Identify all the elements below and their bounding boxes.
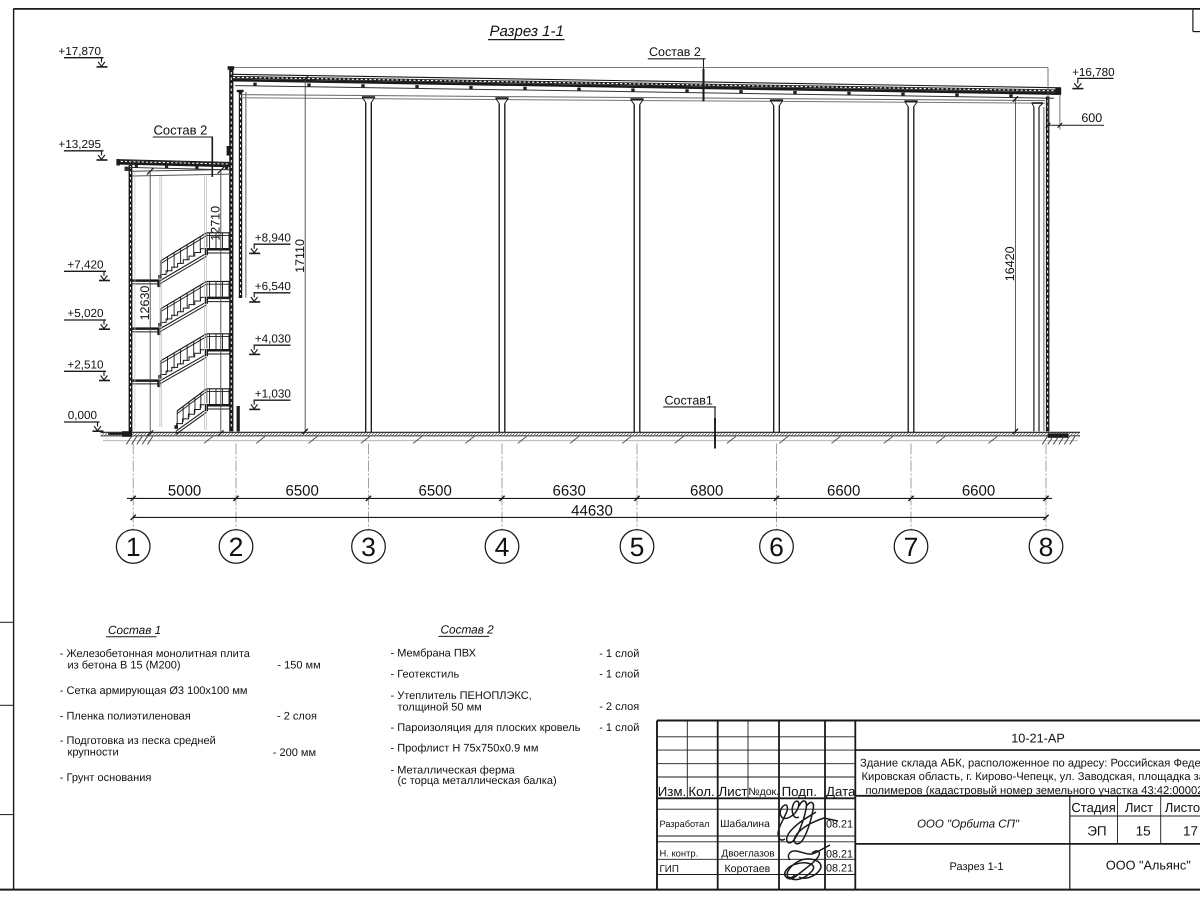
svg-text:Состав 2: Состав 2 xyxy=(649,45,701,59)
svg-text:08.21: 08.21 xyxy=(826,863,853,875)
svg-text:- 1 слой: - 1 слой xyxy=(599,722,639,734)
svg-text:Кировская область, г. Кирово-Ч: Кировская область, г. Кирово-Чепецк, ул.… xyxy=(862,771,1200,783)
svg-text:Разрез 1-1: Разрез 1-1 xyxy=(949,861,1003,873)
svg-text:6: 6 xyxy=(769,532,784,562)
svg-text:12630: 12630 xyxy=(138,286,152,321)
svg-text:ЭП: ЭП xyxy=(1087,824,1106,839)
svg-text:+8,940: +8,940 xyxy=(255,231,292,244)
svg-text:Состав 1: Состав 1 xyxy=(108,623,161,637)
svg-text:+16,780: +16,780 xyxy=(1072,66,1115,79)
svg-text:6630: 6630 xyxy=(553,482,586,499)
svg-text:3: 3 xyxy=(361,532,376,562)
svg-text:+2,510: +2,510 xyxy=(67,359,104,372)
svg-text:6600: 6600 xyxy=(827,482,860,499)
svg-text:- 200 мм: - 200 мм xyxy=(273,747,316,759)
svg-text:Дата: Дата xyxy=(826,784,856,799)
svg-text:- Утеплитель ПЕНОПЛЭКС,: - Утеплитель ПЕНОПЛЭКС, xyxy=(391,690,532,702)
svg-text:600: 600 xyxy=(1081,111,1102,125)
svg-text:Разработал: Разработал xyxy=(660,819,710,829)
svg-text:12710: 12710 xyxy=(208,206,222,241)
svg-text:Подп.: Подп. xyxy=(782,784,817,799)
svg-text:Коротаев: Коротаев xyxy=(725,863,771,875)
svg-text:из бетона В 15 (М200): из бетона В 15 (М200) xyxy=(68,659,181,671)
svg-text:- 150 мм: - 150 мм xyxy=(277,659,320,671)
svg-text:Здание склада АБК, расположенн: Здание склада АБК, расположенное по адре… xyxy=(860,757,1200,769)
svg-text:№док.: №док. xyxy=(748,786,779,798)
svg-text:+17,870: +17,870 xyxy=(58,45,101,58)
svg-text:Двоеглазов: Двоеглазов xyxy=(721,849,774,860)
svg-text:Н. контр.: Н. контр. xyxy=(660,848,699,859)
svg-text:крупности: крупности xyxy=(68,746,119,758)
svg-text:Состав 2: Состав 2 xyxy=(441,622,495,636)
svg-text:8: 8 xyxy=(1039,532,1054,562)
svg-text:0,000: 0,000 xyxy=(68,409,98,422)
svg-text:Стадия: Стадия xyxy=(1071,800,1115,815)
svg-text:2: 2 xyxy=(229,532,244,562)
svg-text:6800: 6800 xyxy=(690,482,723,499)
svg-text:ООО "Орбита СП": ООО "Орбита СП" xyxy=(917,818,1020,830)
svg-text:17: 17 xyxy=(1183,824,1198,839)
svg-text:+13,295: +13,295 xyxy=(58,138,101,151)
svg-text:+5,020: +5,020 xyxy=(67,307,104,320)
svg-text:08.21: 08.21 xyxy=(826,819,853,831)
svg-text:- Железобетонная монолитная п: - Железобетонная монолитная плита xyxy=(60,648,251,660)
svg-text:- Пароизоляция для плоских кро: - Пароизоляция для плоских кровель xyxy=(391,722,581,734)
svg-text:08.21: 08.21 xyxy=(826,849,853,861)
svg-text:5000: 5000 xyxy=(168,482,201,499)
svg-text:5: 5 xyxy=(630,532,645,562)
svg-text:- Геотекстиль: - Геотекстиль xyxy=(391,669,460,681)
svg-text:(с торца металлическая балка): (с торца металлическая балка) xyxy=(398,775,557,787)
svg-text:+6,540: +6,540 xyxy=(255,280,292,293)
svg-text:Шабалина: Шабалина xyxy=(720,819,770,830)
svg-text:- 2 слоя: - 2 слоя xyxy=(599,701,639,713)
svg-text:толщиной 50 мм: толщиной 50 мм xyxy=(398,701,482,713)
svg-text:17110: 17110 xyxy=(293,239,307,273)
svg-text:- 1 слой: - 1 слой xyxy=(599,648,639,660)
svg-text:16420: 16420 xyxy=(1003,246,1017,281)
svg-text:44630: 44630 xyxy=(571,502,613,519)
svg-text:- Мембрана ПВХ: - Мембрана ПВХ xyxy=(391,648,477,660)
svg-text:Состав 2: Состав 2 xyxy=(154,122,208,137)
svg-text:+4,030: +4,030 xyxy=(255,332,292,345)
svg-text:- Сетка армирующая Ø3 100х100: - Сетка армирующая Ø3 100х100 мм xyxy=(60,685,248,697)
svg-text:4: 4 xyxy=(495,532,510,562)
svg-text:Лист: Лист xyxy=(719,784,748,799)
svg-text:- Профлист Н 75х750х0.9 мм: - Профлист Н 75х750х0.9 мм xyxy=(391,743,539,755)
svg-text:- 2 слоя: - 2 слоя xyxy=(277,711,317,723)
svg-text:6500: 6500 xyxy=(286,482,319,499)
svg-text:1: 1 xyxy=(126,532,141,562)
svg-text:- Подготовка из песка средней: - Подготовка из песка средней xyxy=(60,735,216,747)
svg-text:Лист: Лист xyxy=(1125,800,1153,815)
svg-text:+1,030: +1,030 xyxy=(255,387,292,400)
svg-text:10-21-АР: 10-21-АР xyxy=(1011,732,1065,746)
svg-text:- Пленка полиэтиленовая: - Пленка полиэтиленовая xyxy=(60,711,191,723)
svg-text:Разрез 1-1: Разрез 1-1 xyxy=(490,23,564,40)
svg-text:7: 7 xyxy=(904,532,919,562)
svg-text:6500: 6500 xyxy=(419,482,452,499)
svg-text:Листов: Листов xyxy=(1165,800,1200,815)
svg-text:Состав1: Состав1 xyxy=(665,393,713,407)
svg-text:+7,420: +7,420 xyxy=(67,259,104,272)
svg-text:15: 15 xyxy=(1136,824,1151,839)
svg-text:Изм.: Изм. xyxy=(658,784,687,799)
svg-text:полимеров (кадастровый номер з: полимеров (кадастровый номер земельного … xyxy=(866,785,1200,797)
svg-text:6600: 6600 xyxy=(962,482,995,499)
svg-text:Кол.: Кол. xyxy=(688,784,714,799)
svg-text:- Грунт основания: - Грунт основания xyxy=(60,772,152,784)
svg-text:- 1 слой: - 1 слой xyxy=(599,669,639,681)
svg-text:ООО "Альянс": ООО "Альянс" xyxy=(1106,859,1191,873)
svg-text:ГИП: ГИП xyxy=(660,864,679,875)
